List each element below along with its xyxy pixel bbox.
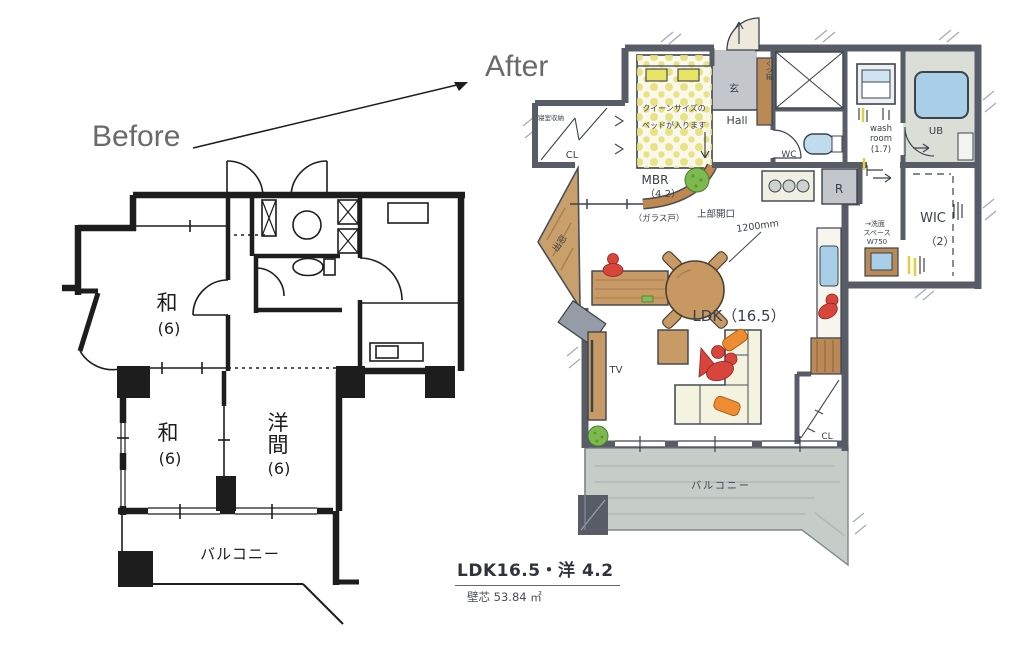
mbr-label: MBR (642, 173, 669, 187)
door-arc (227, 161, 263, 197)
before-floor-plan: 和 (6) 和 (6) 洋 間 (6) バルコニー (62, 155, 472, 645)
basin (293, 211, 321, 239)
bedroom-storage-label: 寝室収納 (538, 113, 564, 122)
tv-board (588, 332, 606, 420)
pillow (678, 69, 699, 81)
shoe-box-label: くつ箱 (764, 60, 772, 81)
plant (685, 168, 709, 192)
kitchen-stove (762, 171, 814, 201)
plan-caption: LDK16.5・洋 4.2 壁芯 53.84 ㎡ (455, 556, 675, 605)
dimension-leader (729, 232, 761, 262)
pillar (336, 366, 365, 398)
washroom-label-3: (1.7) (871, 145, 891, 155)
mbr-size: （4.2） (645, 188, 681, 200)
ldk-label: LDK（16.5） (692, 307, 785, 325)
vanity-sink (871, 253, 892, 270)
upper-opening-label: 上部開口 (697, 208, 735, 220)
wash-space-3: W750 (867, 238, 887, 246)
closet-cl-label: CL (566, 150, 579, 161)
ub-label: UB (929, 126, 943, 137)
door-arc (291, 161, 327, 197)
wc-label: WC (781, 150, 796, 160)
balcony-label: バルコニー (200, 545, 280, 563)
room-size: (6) (158, 319, 181, 338)
bath-mat (958, 133, 973, 160)
pipe-space-x-box (776, 52, 843, 108)
washroom-label-2: room (870, 134, 892, 144)
room-label-wa-top: 和 (157, 291, 178, 315)
door-arc (256, 268, 284, 296)
wash-space-1: →洗面 (865, 219, 885, 228)
shelf (811, 338, 841, 374)
entrance-label: 玄 (729, 82, 739, 95)
entrance-door (727, 18, 759, 50)
washroom-door-symbol (867, 165, 891, 182)
washroom-label-1: wash (870, 124, 892, 134)
door-arc (360, 258, 402, 300)
entry-diagonal-wall (80, 293, 98, 351)
person-desk (603, 254, 623, 277)
wic-size: （2） (926, 235, 955, 248)
opening-width-label: 1200mm (736, 218, 780, 235)
coffee-table (658, 330, 688, 364)
pillar (216, 476, 236, 511)
bathtub (388, 203, 428, 223)
room-label-wa-bottom: 和 (158, 421, 179, 445)
closet-fold-doors (801, 380, 839, 438)
bathtub (915, 72, 968, 118)
tv-label: TV (609, 365, 623, 376)
pillar (425, 366, 455, 398)
before-label: Before (92, 120, 180, 154)
desk (592, 271, 668, 305)
room-size: (6) (268, 459, 291, 478)
hall-label: Hall (726, 114, 747, 127)
plant (588, 426, 608, 446)
pillar (117, 366, 150, 398)
toilet (804, 134, 834, 154)
floorplan-comparison: Before After (0, 0, 1024, 645)
fridge-label: R (835, 182, 843, 196)
bed-note-2: ベッドが入ります (642, 120, 706, 130)
toilet (293, 259, 323, 276)
after-floor-plan: 寝室収納 CL クイーンサイズの ベッドが入ります MBR （4.2） 玄 くつ… (515, 8, 1015, 628)
closet-bottom-label: CL (821, 432, 832, 442)
room-label-youma-1: 洋 (268, 411, 289, 435)
toilet-tank (832, 136, 842, 152)
entrance-tile (712, 50, 757, 110)
before-after-arrow (185, 70, 480, 160)
glass-door-line (570, 199, 643, 209)
yellow-accent (909, 256, 915, 276)
pillar (118, 551, 153, 587)
bed-note-1: クイーンサイズの (642, 103, 705, 113)
wash-space-2: スペース (863, 229, 890, 237)
door-arc (193, 280, 228, 315)
entry-door-arc (80, 351, 120, 370)
kitchen-sink (820, 246, 838, 286)
caption-area: 壁芯 53.84 ㎡ (455, 589, 675, 605)
balcony-label: バルコニー (691, 480, 751, 492)
wic-label: WIC (920, 211, 946, 226)
washing-machine (857, 64, 895, 104)
caption-title: LDK16.5・洋 4.2 (455, 556, 620, 586)
room-label-youma-2: 間 (268, 433, 289, 457)
glass-door-label: （ガラス戸） (634, 213, 685, 224)
room-size: (6) (159, 449, 182, 468)
pillow (646, 69, 667, 81)
